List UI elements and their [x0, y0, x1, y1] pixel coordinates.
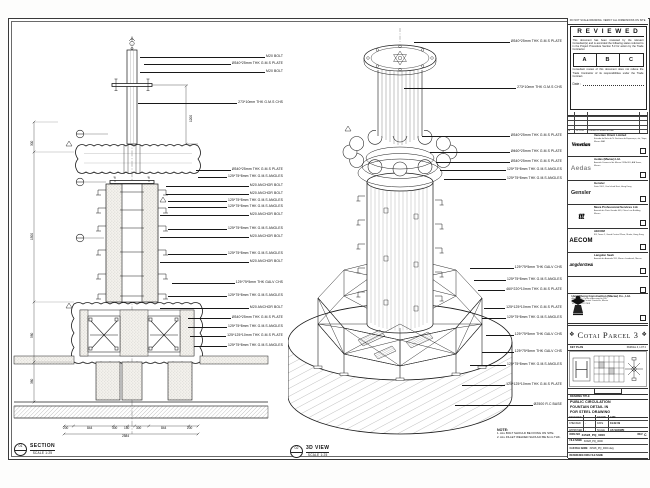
- file-name-rows: FILE NAME31528_PQ_0000CAD FILE NAME31528…: [568, 438, 648, 459]
- consultant-address: Avenida da Praia Grande 409, China Law B…: [594, 210, 647, 215]
- annotation: 125*75*8mm THK G.M.S ANGLES: [198, 175, 283, 179]
- annotation: M20 ANCHOR BOLT: [160, 213, 283, 217]
- revision-table: A14.11.08ISSUED FOR APPROVALREVDATEDESCR…: [568, 112, 648, 134]
- leader-line: [168, 254, 227, 255]
- key-plan-map: [568, 350, 648, 388]
- annotation-label: Ø340*25mm THK G.M.S PLATE: [511, 40, 562, 43]
- leader-line: [166, 194, 249, 195]
- annotation: Ø2500 R.C BASE: [455, 403, 562, 407]
- status-checkbox: [640, 148, 646, 154]
- revision-cell: [568, 121, 575, 125]
- annotation: 460*220*10mm THK G.M.S PLATE: [478, 288, 562, 292]
- section-view-title: 01 SECTION SCALE 1:25: [14, 443, 55, 456]
- drawing-title-line: FOR STEEL DRAWING: [570, 410, 646, 415]
- leader-line: [160, 262, 249, 263]
- revision-cell: [568, 112, 575, 116]
- status-checkbox: [640, 172, 646, 178]
- dimension-label: 200: [63, 427, 68, 430]
- leader-line: [160, 237, 249, 238]
- annotation-label: 125*75*8mm THK G.M.S ANGLES: [228, 325, 283, 328]
- status-checkbox: [640, 220, 646, 226]
- annotation: 125*75*8mm THK G.M.S ANGLES: [470, 363, 562, 367]
- consultant-logo: Gensler: [569, 182, 593, 203]
- leader-line: [188, 318, 231, 319]
- annotation-label: 125*75*8mm THK G.M.S ANGLES: [228, 344, 283, 347]
- key-pl an-graphic: [568, 350, 648, 389]
- annotation-label: 125*125*10mm THK G.M.S PLATE: [227, 334, 283, 337]
- consultant-info: Venetian Orient LimitedEstrada da Baía d…: [593, 134, 647, 143]
- leader-line: [470, 365, 506, 366]
- annotation: 125*75*8mm THK G.M.S ANGLES: [168, 227, 283, 231]
- consultant-row-empty: [568, 277, 648, 294]
- reviewed-status-options: A B C: [573, 53, 644, 67]
- ornament-icon: ❖: [569, 331, 574, 338]
- dimension-label: 200: [187, 427, 192, 430]
- annotation: 125*75*8mm THK G.M.S ANGLES: [194, 344, 283, 348]
- status-checkbox: [640, 268, 646, 274]
- leader-line: [160, 308, 249, 309]
- annotation-label: 125*75*8mm THK G.M.S ANGLES: [228, 294, 283, 297]
- annotation-label: 273*10mm THK G.M.S CHS: [238, 101, 283, 104]
- revision-cell: [640, 126, 648, 130]
- leader-line: [444, 179, 506, 180]
- revision-cell: [640, 121, 648, 125]
- annotation: 125*125*10mm THK G.M.S PLATE: [484, 306, 562, 310]
- rev-value: C: [644, 433, 646, 437]
- annotation-label: Ø2500 R.C BASE: [534, 403, 562, 406]
- file-name-row: FILE NAME31528_PQ_0000: [568, 438, 648, 445]
- consultant-row: AECOMAECOM8/F, Tower 2, Grand Central Pl…: [568, 229, 648, 253]
- consultant-row: AedasAedas (Macau) Ltd.Avenida Comercial…: [568, 157, 648, 181]
- annotation: 125*125*10mm THK G.M.S PLATE: [190, 334, 283, 338]
- annotation: 125*75*8mm THK G.M.S ANGLES: [440, 168, 562, 172]
- project-title-row: ❖ Cotai Parcel 3 ❖: [568, 325, 648, 345]
- consultant-name: Meca Professional Services Ltd.: [594, 206, 647, 209]
- annotation: 125*75*8mm THK G.M.S ANGLES: [188, 325, 283, 329]
- annotation: 125*75*8mm THK G.M.S ANGLES: [168, 199, 283, 203]
- reviewed-box: R E V I E W E D This document has been r…: [570, 26, 647, 110]
- annotation: 125*75*5mm THK GALV CHS: [482, 350, 562, 354]
- status-option-a: A: [574, 54, 597, 66]
- consultant-address: Suite 1901, One Island East, Hong Kong: [594, 186, 647, 189]
- annotation-label: 125*75*5mm THK GALV CHS: [515, 350, 562, 353]
- leader-line: [190, 336, 226, 337]
- dimension-label: 300: [136, 427, 141, 430]
- leader-line: [486, 335, 514, 336]
- revision-cell: [575, 121, 588, 125]
- leader-line: [484, 308, 505, 309]
- general-notes: NOTE: 1. ALL BOLT SHOULD BE FIXING ON SI…: [497, 428, 567, 439]
- consultant-info: Langdon SeahAvenida da Amizade 555, Maca…: [593, 254, 647, 261]
- reviewed-paragraph: This document has been reviewed by the r…: [573, 39, 644, 52]
- annotation-label: 125*75*8mm THK G.M.S ANGLES: [228, 205, 283, 208]
- leader-line: [160, 215, 249, 216]
- annotation: M20 ANCHOR BOLT: [166, 184, 283, 188]
- consultant-name: Venetian Orient Limited: [594, 134, 647, 137]
- status-option-c: C: [620, 54, 643, 66]
- annotation: Ø340*25mm THK G.M.S PLATE: [196, 168, 283, 172]
- dimension-label: 1500: [31, 233, 34, 240]
- key-plan-label: KEY PLAN: [570, 346, 583, 349]
- annotation: 273*10mm THK G.M.S CHS: [138, 101, 283, 105]
- consultant-address: Estrada da Baía de N. Senhora da Esperan…: [594, 138, 647, 143]
- annotation: 273*10mm THK G.M.S CHS: [404, 86, 562, 90]
- dimension-label: 580: [31, 333, 34, 338]
- field-cell: DRAWN: [596, 415, 609, 420]
- dimension-label: 2584: [122, 435, 129, 438]
- consultant-logo: LangdonSeah: [569, 254, 593, 275]
- leader-line: [188, 327, 227, 328]
- annotation: 125*75*8mm THK G.M.S ANGLES: [444, 177, 562, 181]
- annotation-label: 125*75*8mm THK G.M.S ANGLES: [228, 252, 283, 255]
- consultant-row: tttMeca Professional Services Ltd.Avenid…: [568, 205, 648, 229]
- consultant-list: VenetianVenetian Orient LimitedEstrada d…: [568, 133, 648, 294]
- annotation: M20 ANCHOR BOLT: [160, 260, 283, 264]
- leader-line: [455, 405, 533, 406]
- date-label: Date :: [573, 82, 582, 86]
- consultant-info: AECOM8/F, Tower 2, Grand Central Plaza, …: [593, 230, 647, 237]
- annotation: Ø340*25mm THK G.M.S PLATE: [414, 40, 562, 44]
- annotation: 125*75*8mm THK G.M.S ANGLES: [168, 205, 283, 209]
- leader-line: [440, 170, 506, 171]
- consultant-logo: Aedas: [569, 158, 593, 179]
- leader-line: [462, 385, 505, 386]
- annotation: M20 ANCHOR BOLT: [160, 235, 283, 239]
- drawing-sheet-canvas: M20 BOLTØ340*25mm THK G.M.S PLATEM20 BOL…: [0, 0, 650, 488]
- date-fill-line: [583, 81, 643, 86]
- annotation: M20 BOLT: [140, 70, 283, 74]
- field-cell: LMC: [609, 415, 648, 420]
- annotation-label: M20 ANCHOR BOLT: [250, 235, 283, 238]
- field-cell: -: [584, 421, 596, 426]
- leader-line: [436, 162, 510, 163]
- annotation: 125*75*5mm THK GALV CHS: [486, 333, 562, 337]
- status-checkbox: [640, 196, 646, 202]
- leader-line: [194, 346, 227, 347]
- field-cell: CHECKED: [568, 421, 584, 426]
- annotation-label: Ø340*25mm THK G.M.S PLATE: [232, 316, 283, 319]
- note-item: 2. ALL FILLET WELDED SHOULD BE 6mm THK.: [497, 436, 567, 440]
- section-detail-marker: 01: [14, 443, 27, 456]
- reviewed-paragraph: Consultant review of this document does …: [573, 68, 644, 78]
- file-row-value: 31528_PQ_0000.dwg: [590, 447, 614, 450]
- annotation: Ø340*25mm THK G.M.S PLATE: [422, 134, 562, 138]
- annotation-label: M20 BOLT: [266, 70, 283, 73]
- fields-grid: DESIGNEDDRAWNLMCCHECKED-DATE19.02.09APPR…: [568, 415, 648, 432]
- rev-label: REV: [637, 433, 642, 436]
- leader-line: [138, 103, 237, 104]
- revision-cell: [575, 126, 588, 130]
- file-row-label: CAD FILE NAME: [570, 448, 588, 450]
- revision-cell: [588, 112, 640, 116]
- leader-line: [198, 177, 227, 178]
- revision-cell: [640, 112, 648, 116]
- consultant-name: Gensler: [594, 182, 647, 185]
- annotation-label: 125*75*8mm THK G.M.S ANGLES: [507, 177, 562, 180]
- leader-line: [474, 280, 506, 281]
- dimension-label: 150: [124, 427, 129, 430]
- annotation-layer: M20 BOLTØ340*25mm THK G.M.S PLATEM20 BOL…: [0, 0, 650, 488]
- annotation: 125*75*8mm THK G.M.S ANGLES: [482, 316, 562, 320]
- file-row-label: FILE NAME: [570, 440, 582, 442]
- file-row-value: 31528_PQ_0000: [584, 440, 603, 443]
- leader-line: [482, 352, 514, 353]
- leader-line: [196, 170, 231, 171]
- leader-line: [140, 72, 265, 73]
- annotation-label: 460*220*10mm THK G.M.S PLATE: [506, 288, 562, 291]
- leader-line: [404, 88, 516, 89]
- consultant-row: LangdonSeahLangdon SeahAvenida da Amizad…: [568, 253, 648, 277]
- annotation: 125*125*10mm THK G.M.S PLATE: [462, 383, 562, 387]
- consultant-address: 8/F, Tower 2, Grand Central Plaza, Shati…: [594, 234, 647, 237]
- annotation: 125*75*8mm THK G.M.S ANGLES: [168, 252, 283, 256]
- leader-line: [478, 290, 505, 291]
- revision-cell: [588, 126, 640, 130]
- consultant-name: Aedas (Macau) Ltd.: [594, 158, 647, 161]
- leader-line: [422, 136, 510, 137]
- consultant-info: Meca Professional Services Ltd.Avenida d…: [593, 206, 647, 215]
- revision-cell: [568, 126, 575, 130]
- leader-line: [168, 207, 227, 208]
- leader-line: [144, 64, 231, 65]
- dimension-label: 300: [31, 141, 34, 146]
- reviewed-title: R E V I E W E D: [573, 28, 644, 37]
- leader-line: [140, 57, 265, 58]
- dwg-no-label: DWG NO: [570, 433, 581, 436]
- file-name-row: CAD FILE NAME31528_PQ_0000.dwg: [568, 445, 648, 452]
- section-scale-label: SCALE 1:25: [30, 451, 55, 456]
- annotation-label: Ø340*25mm THK G.M.S PLATE: [511, 134, 562, 137]
- annotation: Ø340*25mm THK G.M.S PLATE: [188, 316, 283, 320]
- reviewed-stamp: R E V I E W E D This document has been r…: [568, 24, 648, 116]
- field-cell: [584, 415, 596, 420]
- consultant-name: Langdon Seah: [594, 254, 647, 257]
- section-title-label: SECTION: [30, 443, 55, 451]
- annotation: M20 ANCHOR BOLT: [166, 192, 283, 196]
- reviewed-date-row: Date :: [573, 81, 644, 86]
- consultant-info: Aedas (Macau) Ltd.Avenida Comercial de M…: [593, 158, 647, 167]
- annotation-label: M20 BOLT: [266, 55, 283, 58]
- annotation-label: 125*125*10mm THK G.M.S PLATE: [506, 306, 562, 309]
- annotation: M20 ANCHOR BOLT: [160, 306, 283, 310]
- revision-cell: [588, 121, 640, 125]
- annotation: Ø340*25mm THK G.M.S PLATE: [436, 160, 562, 164]
- consultant-logo: AECOM: [569, 230, 593, 251]
- consultant-name: AECOM: [594, 230, 647, 233]
- consultant-address: Avenida da Amizade 555, Macau Landmark, …: [594, 258, 647, 261]
- file-row-label: REFERENCE DWG FILE NAME: [570, 455, 603, 457]
- annotation-label: 125*75*5mm THK GALV CHS: [515, 333, 562, 336]
- annotation-label: 273*10mm THK G.M.S CHS: [517, 86, 562, 89]
- dwg-no-value: 31528_PQ_0000: [582, 433, 636, 437]
- consultant-address: Avenida Comercial de Macau 251A-301, AIA…: [594, 162, 647, 167]
- consultant-logo: ttt: [569, 206, 593, 227]
- consultant-logo: Venetian: [569, 134, 593, 155]
- status-checkbox: [640, 244, 646, 250]
- leader-line: [470, 268, 514, 269]
- annotation-label: 125*75*8mm THK G.M.S ANGLES: [228, 175, 283, 178]
- revision-cell: [588, 117, 640, 121]
- annotation-label: 125*75*8mm THK G.M.S ANGLES: [507, 168, 562, 171]
- consultant-row: VenetianVenetian Orient LimitedEstrada d…: [568, 133, 648, 157]
- dimension-label: 844: [161, 427, 166, 430]
- dimension-label: 844: [87, 427, 92, 430]
- annotation-label: Ø340*25mm THK G.M.S PLATE: [232, 62, 283, 65]
- annotation-label: 125*75*8mm THK G.M.S ANGLES: [507, 363, 562, 366]
- annotation-label: Ø340*25mm THK G.M.S PLATE: [511, 160, 562, 163]
- dimension-label: 300: [112, 427, 117, 430]
- annotation-label: 125*75*8mm THK G.M.S ANGLES: [507, 278, 562, 281]
- annotation-label: M20 ANCHOR BOLT: [250, 184, 283, 187]
- annotation-label: M20 ANCHOR BOLT: [250, 306, 283, 309]
- annotation-label: 125*75*8mm THK G.M.S ANGLES: [507, 316, 562, 319]
- dimension-label: 380: [31, 379, 34, 384]
- annotation: 125*75*5mm THK GALV CHS: [470, 266, 562, 270]
- revision-cell: [575, 112, 588, 116]
- revision-cell: [568, 117, 575, 121]
- iso-detail-marker: 02: [290, 445, 303, 458]
- annotation-label: 125*125*10mm THK G.M.S PLATE: [506, 383, 562, 386]
- consultant-info: GenslerSuite 1901, One Island East, Hong…: [593, 182, 647, 189]
- project-title: Cotai Parcel 3: [577, 330, 638, 340]
- file-name-row: REFERENCE DWG FILE NAME: [568, 453, 648, 459]
- leader-line: [168, 296, 227, 297]
- annotation: Ø340*25mm THK G.M.S PLATE: [144, 62, 283, 66]
- dimension-label: 1200: [190, 115, 193, 122]
- contractor-logo-icon: [570, 295, 586, 317]
- annotation-label: 125*75*5mm THK GALV CHS: [515, 266, 562, 269]
- annotation-label: M20 ANCHOR BOLT: [250, 192, 283, 195]
- annotation-label: M20 ANCHOR BOLT: [250, 260, 283, 263]
- annotation: 125*75*8mm THK G.M.S ANGLES: [168, 294, 283, 298]
- leader-line: [482, 318, 506, 319]
- revision-cell: [640, 117, 648, 121]
- status-option-b: B: [597, 54, 620, 66]
- annotation-label: M20 ANCHOR BOLT: [250, 213, 283, 216]
- leader-line: [166, 186, 249, 187]
- key-plan-note: PARCEL 3, LOT 2: [627, 346, 646, 349]
- leader-line: [172, 283, 235, 284]
- iso-scale-label: SCALE 1:25: [306, 453, 329, 458]
- iso-title-label: 3D VIEW: [306, 445, 329, 453]
- iso-view-title: 02 3D VIEW SCALE 1:25: [290, 445, 329, 458]
- leader-line: [168, 229, 227, 230]
- leader-line: [168, 201, 227, 202]
- annotation: Ø460*25mm THK G.M.S PLATE: [430, 150, 562, 154]
- leader-line: [414, 42, 510, 43]
- field-cell: DESIGNED: [568, 415, 584, 420]
- field-cell: DATE: [596, 421, 609, 426]
- annotation-label: Ø460*25mm THK G.M.S PLATE: [511, 150, 562, 153]
- annotation-label: 125*75*8mm THK G.M.S ANGLES: [228, 227, 283, 230]
- annotation: M20 BOLT: [140, 55, 283, 59]
- annotation-label: 125*75*8mm THK G.M.S ANGLES: [228, 199, 283, 202]
- annotation: 125*75*8mm THK G.M.S ANGLES: [474, 278, 562, 282]
- leader-line: [430, 152, 510, 153]
- annotation-label: 125*75*5mm THK GALV CHS: [236, 281, 283, 284]
- annotation-label: Ø340*25mm THK G.M.S PLATE: [232, 168, 283, 171]
- consultant-row: GenslerGenslerSuite 1901, One Island Eas…: [568, 181, 648, 205]
- title-block: DO NOT SCALE DRAWING. VERIFY ALL DIMENSI…: [567, 18, 648, 458]
- ornament-icon: ❖: [642, 331, 647, 338]
- revision-cell: [575, 117, 588, 121]
- field-cell: 19.02.09: [609, 421, 648, 426]
- annotation: 125*75*5mm THK GALV CHS: [172, 281, 283, 285]
